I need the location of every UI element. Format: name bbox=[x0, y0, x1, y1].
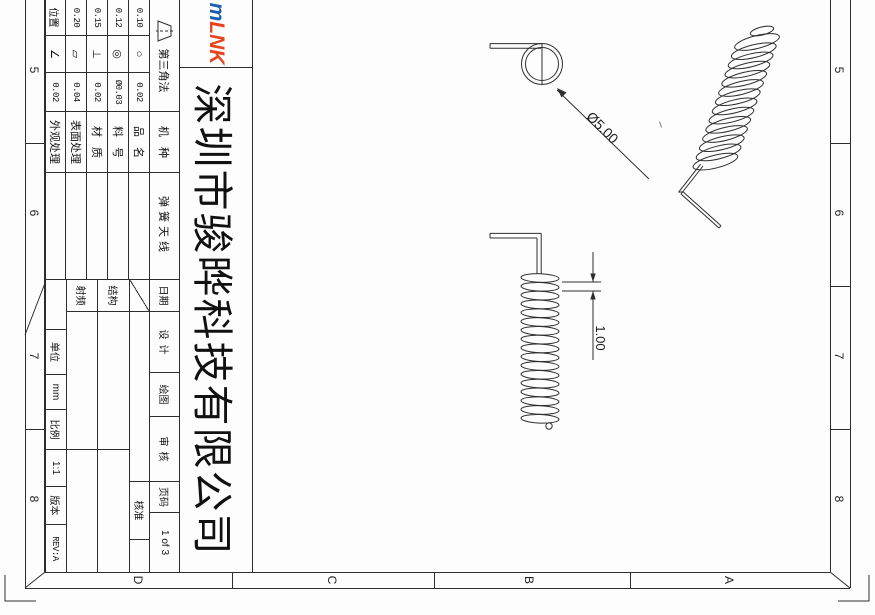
zone-label-bottom: C bbox=[324, 572, 340, 588]
dim-outer-diameter: Ø5.00 bbox=[557, 88, 649, 179]
tolerance-value: 0.02 bbox=[86, 73, 107, 112]
approve-label: 核准 bbox=[129, 482, 149, 540]
surface-treatment-value bbox=[65, 173, 86, 280]
tolerance-size: 0.10 bbox=[128, 0, 149, 36]
zone-tick bbox=[630, 572, 631, 588]
stray-mark bbox=[660, 122, 662, 128]
signature-space bbox=[66, 450, 97, 572]
projection-label: 第三角法 bbox=[157, 49, 173, 93]
dim-outer-diameter-text: Ø5.00 bbox=[583, 108, 621, 146]
zone-label-left: 5 bbox=[26, 62, 42, 78]
revision-label: 版本 bbox=[44, 487, 66, 525]
zone-label-left: 8 bbox=[26, 491, 42, 507]
product-name-value bbox=[128, 173, 149, 280]
zone-tick bbox=[830, 286, 850, 287]
tolerance-size: 0.20 bbox=[65, 0, 86, 36]
signature-space bbox=[66, 312, 97, 450]
zone-tick bbox=[232, 572, 233, 588]
appearance-value bbox=[44, 173, 65, 280]
zone-label-bottom: B bbox=[521, 572, 537, 588]
tolerance-value: Ø0.03 bbox=[107, 73, 128, 112]
machine-type-value: 弹簧天线 bbox=[149, 173, 179, 280]
zone-label-right: 6 bbox=[831, 205, 847, 221]
review-label: 审核 bbox=[149, 417, 179, 482]
part-number-value bbox=[107, 173, 128, 280]
third-angle-cone-icon bbox=[156, 19, 173, 43]
zone-label-bottom: A bbox=[721, 572, 737, 588]
zone-label-right: 7 bbox=[831, 348, 847, 364]
inner-border-bottom bbox=[45, 572, 830, 573]
parallelism-icon: ▱ bbox=[65, 36, 86, 73]
material-value bbox=[86, 173, 107, 280]
roundness-icon: ○ bbox=[128, 36, 149, 73]
machine-type-label: 机种 bbox=[149, 112, 179, 173]
tolerance-size: 0.12 bbox=[107, 0, 128, 36]
zone-label-bottom: D bbox=[130, 572, 146, 588]
surface-treatment-label: 表面处理 bbox=[65, 112, 86, 173]
company-name: 深圳市骏晔科技有限公司 bbox=[179, 68, 252, 572]
outer-border-bottom bbox=[25, 588, 850, 589]
spring-iso-view bbox=[660, 24, 781, 228]
page-value: 1 of 3 bbox=[149, 513, 179, 572]
drawing-sheet: { "company": { "name": "深圳市骏晔科技有限公司" }, … bbox=[0, 0, 875, 615]
dim-wire-diameter: 1.00 bbox=[562, 252, 608, 360]
unit-value: mm bbox=[44, 375, 66, 410]
revision-value: REV:A bbox=[44, 525, 66, 572]
tolerance-value: 0.02 bbox=[128, 73, 149, 112]
zone-tick bbox=[25, 143, 45, 144]
unit-label: 单位 bbox=[44, 330, 66, 375]
signature-space bbox=[129, 540, 149, 572]
footer-empty bbox=[44, 280, 66, 330]
tolerance-value: 0.02 bbox=[44, 73, 65, 112]
material-label: 材质 bbox=[86, 112, 107, 173]
design-label: 设计 bbox=[149, 312, 179, 373]
part-number-label: 料号 bbox=[107, 112, 128, 173]
signature-space bbox=[97, 312, 129, 450]
zone-tick bbox=[830, 143, 850, 144]
zone-tick bbox=[434, 572, 435, 588]
appearance-label: 外观处理 bbox=[44, 112, 65, 173]
signature-space bbox=[97, 450, 129, 572]
logo-lnk: LNK bbox=[204, 21, 228, 64]
company-logo: mLNK bbox=[179, 0, 252, 68]
zone-tick bbox=[830, 429, 850, 430]
zone-label-left: 7 bbox=[26, 348, 42, 364]
zone-tick bbox=[25, 429, 45, 430]
zone-label-right: 5 bbox=[831, 62, 847, 78]
page-label: 页码 bbox=[149, 482, 179, 513]
title-block: mLNK 深圳市骏晔科技有限公司 第三角法 机种 弹簧天线 日期 设计 绘图 审… bbox=[45, 0, 253, 572]
zone-label-right: 8 bbox=[831, 491, 847, 507]
date-label: 日期 bbox=[149, 280, 179, 312]
outer-border-right bbox=[850, 0, 851, 588]
na-slash-cell bbox=[129, 280, 149, 312]
projection-method-cell: 第三角法 bbox=[149, 0, 179, 112]
signature-space bbox=[129, 312, 149, 482]
product-name-label: 品名 bbox=[128, 112, 149, 173]
dim-wire-diameter-text: 1.00 bbox=[593, 325, 608, 350]
logo-m: m bbox=[204, 3, 228, 22]
rf-label: 射频 bbox=[66, 280, 97, 312]
angularity-icon: ∠ bbox=[44, 36, 65, 73]
spring-front-view bbox=[490, 233, 559, 429]
zone-label-left: 6 bbox=[26, 205, 42, 221]
concentricity-icon: ◎ bbox=[107, 36, 128, 73]
tolerance-size: 0.15 bbox=[86, 0, 107, 36]
tolerance-value: 0.04 bbox=[65, 73, 86, 112]
spring-top-view bbox=[490, 44, 563, 85]
scale-value: 1:1 bbox=[44, 450, 66, 487]
scale-label: 比例 bbox=[44, 410, 66, 450]
draft-label: 绘图 bbox=[149, 373, 179, 417]
position-label: 位置 bbox=[44, 0, 65, 36]
structure-label: 结构 bbox=[97, 280, 129, 312]
perpendicularity-icon: ⊥ bbox=[86, 36, 107, 73]
